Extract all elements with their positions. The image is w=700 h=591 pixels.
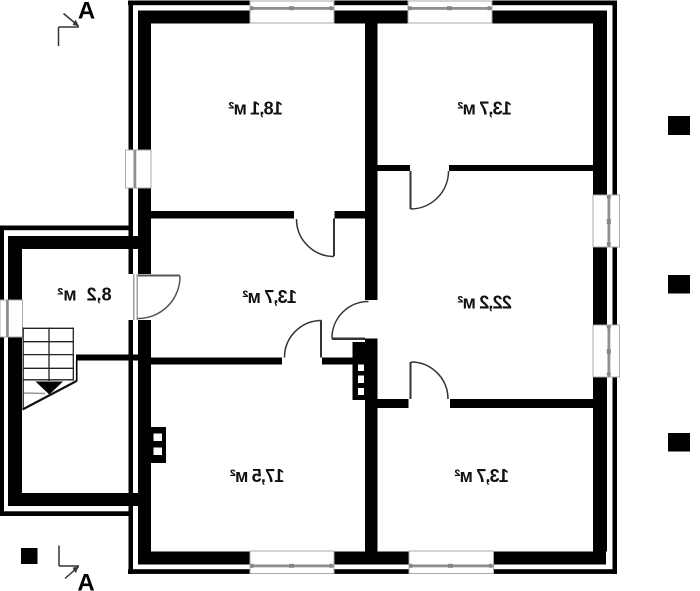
- svg-text:13,7 м²: 13,7 м²: [454, 466, 509, 486]
- svg-text:18,1 м²: 18,1 м²: [228, 99, 283, 119]
- svg-text:A: A: [77, 570, 94, 591]
- svg-text:13,7 м²: 13,7 м²: [242, 287, 297, 307]
- svg-text:22,2 м²: 22,2 м²: [457, 293, 512, 313]
- svg-text:17,5 м²: 17,5 м²: [230, 466, 285, 486]
- svg-text:8,2 м²: 8,2 м²: [57, 285, 111, 305]
- svg-text:13,7 м²: 13,7 м²: [457, 99, 512, 119]
- svg-text:A: A: [78, 0, 95, 25]
